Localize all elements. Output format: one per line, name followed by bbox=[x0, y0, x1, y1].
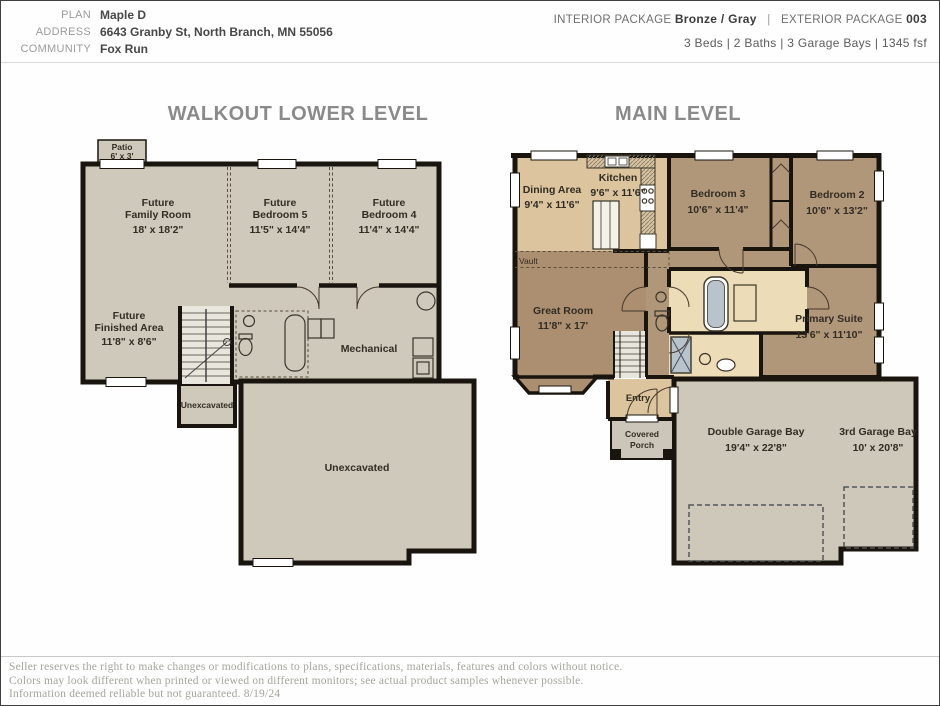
package-line: INTERIOR PACKAGE Bronze / Gray | EXTERIO… bbox=[554, 12, 927, 26]
finished-area-dims: 11'8" x 8'6" bbox=[101, 336, 156, 348]
family-room-prefix: Future bbox=[142, 197, 175, 209]
plan-label: PLAN bbox=[11, 7, 91, 24]
bedroom2-label: Bedroom 2 bbox=[810, 189, 865, 201]
dining-label: Dining Area bbox=[523, 184, 582, 196]
finished-area-label: Finished Area bbox=[94, 322, 163, 334]
bedroom2-dims: 10'6" x 13'2" bbox=[806, 205, 868, 217]
family-room-label: Family Room bbox=[125, 209, 191, 221]
bedroom4-label: Bedroom 4 bbox=[362, 209, 417, 221]
finished-area-prefix: Future bbox=[113, 310, 146, 322]
double-garage-dims: 19'4" x 22'8" bbox=[725, 442, 787, 454]
room-bath-main bbox=[669, 269, 807, 333]
disclaimer-line-2: Colors may look different when printed o… bbox=[9, 675, 939, 689]
unexcavated-large-label: Unexcavated bbox=[325, 462, 390, 474]
lower-level-svg: Patio 6' x 3' bbox=[79, 137, 479, 569]
header: PLAN Maple D ADDRESS 6643 Granby St, Nor… bbox=[1, 1, 939, 63]
interior-package-value: Bronze / Gray bbox=[675, 12, 757, 26]
footer-disclaimer: Seller reserves the right to make change… bbox=[1, 656, 939, 705]
front-door bbox=[626, 415, 658, 422]
porch-post bbox=[611, 449, 621, 459]
exterior-package-label: EXTERIOR PACKAGE bbox=[781, 14, 903, 26]
third-garage-label: 3rd Garage Bay bbox=[839, 426, 917, 438]
community-value: Fox Run bbox=[100, 41, 148, 58]
plan-row: PLAN Maple D bbox=[11, 7, 333, 24]
bedroom5-label: Bedroom 5 bbox=[253, 209, 308, 221]
garage-entry-door bbox=[670, 387, 678, 413]
primary-suite-dims: 13'6" x 11'10" bbox=[796, 329, 863, 341]
bedroom3-dims: 10'6" x 11'4" bbox=[687, 204, 748, 216]
hallway bbox=[646, 251, 669, 377]
disclaimer-line-1: Seller reserves the right to make change… bbox=[9, 661, 939, 675]
bedroom5-prefix: Future bbox=[264, 197, 297, 209]
community-label: COMMUNITY bbox=[11, 41, 91, 58]
package-divider: | bbox=[760, 14, 777, 26]
room-garage bbox=[674, 379, 916, 563]
stairs-main bbox=[615, 331, 645, 378]
bedroom5-dims: 11'5" x 14'4" bbox=[249, 224, 310, 236]
family-room-dims: 18' x 18'2" bbox=[133, 224, 184, 236]
address-label: ADDRESS bbox=[11, 24, 91, 41]
kitchen-label: Kitchen bbox=[599, 172, 638, 184]
header-right: INTERIOR PACKAGE Bronze / Gray | EXTERIO… bbox=[554, 12, 927, 50]
lower-level-plan: Patio 6' x 3' bbox=[79, 137, 479, 574]
island bbox=[593, 201, 619, 249]
dining-dims: 9'4" x 11'6" bbox=[524, 199, 579, 211]
covered-porch-label-1: Covered bbox=[625, 429, 659, 439]
primary-suite-label: Primary Suite bbox=[795, 313, 863, 325]
porch-post bbox=[663, 449, 673, 459]
bedroom3-label: Bedroom 3 bbox=[691, 188, 746, 200]
double-garage-label: Double Garage Bay bbox=[708, 426, 805, 438]
third-garage-dims: 10' x 20'8" bbox=[853, 442, 904, 454]
community-row: COMMUNITY Fox Run bbox=[11, 41, 333, 58]
address-row: ADDRESS 6643 Granby St, North Branch, MN… bbox=[11, 24, 333, 41]
vanity-sink-icon bbox=[717, 359, 735, 371]
interior-package-label: INTERIOR PACKAGE bbox=[554, 14, 672, 26]
great-room-label: Great Room bbox=[533, 305, 593, 317]
mechanical-label: Mechanical bbox=[341, 343, 398, 355]
floor-plan-sheet: PLAN Maple D ADDRESS 6643 Granby St, Nor… bbox=[0, 0, 940, 706]
unexcavated-small-label: Unexcavated bbox=[181, 400, 233, 410]
great-room-dims: 11'8" x 17' bbox=[538, 320, 588, 332]
bedroom4-prefix: Future bbox=[373, 197, 406, 209]
main-level-title: MAIN LEVEL bbox=[478, 103, 878, 126]
stairs-lower bbox=[178, 306, 234, 384]
plan-value: Maple D bbox=[100, 7, 146, 24]
main-level-svg: Dining Area 9'4" x 11'6" Kitchen 9'6" x … bbox=[509, 137, 921, 569]
exterior-package-value: 003 bbox=[906, 12, 927, 26]
specs-line: 3 Beds | 2 Baths | 3 Garage Bays | 1345 … bbox=[554, 36, 927, 50]
entry-label: Entry bbox=[626, 393, 651, 404]
fridge-icon bbox=[640, 234, 656, 249]
kitchen-dims: 9'6" x 11'6" bbox=[590, 187, 645, 199]
bedroom4-dims: 11'4" x 14'4" bbox=[358, 224, 419, 236]
main-level-plan: Dining Area 9'4" x 11'6" Kitchen 9'6" x … bbox=[509, 137, 921, 574]
address-value: 6643 Granby St, North Branch, MN 55056 bbox=[100, 24, 333, 41]
lower-level-title: WALKOUT LOWER LEVEL bbox=[98, 103, 498, 126]
disclaimer-line-3: Information deemed reliable but not guar… bbox=[9, 688, 939, 702]
vault-label: Vault bbox=[519, 256, 538, 266]
covered-porch-label-2: Porch bbox=[630, 440, 654, 450]
header-left: PLAN Maple D ADDRESS 6643 Granby St, Nor… bbox=[11, 7, 333, 58]
